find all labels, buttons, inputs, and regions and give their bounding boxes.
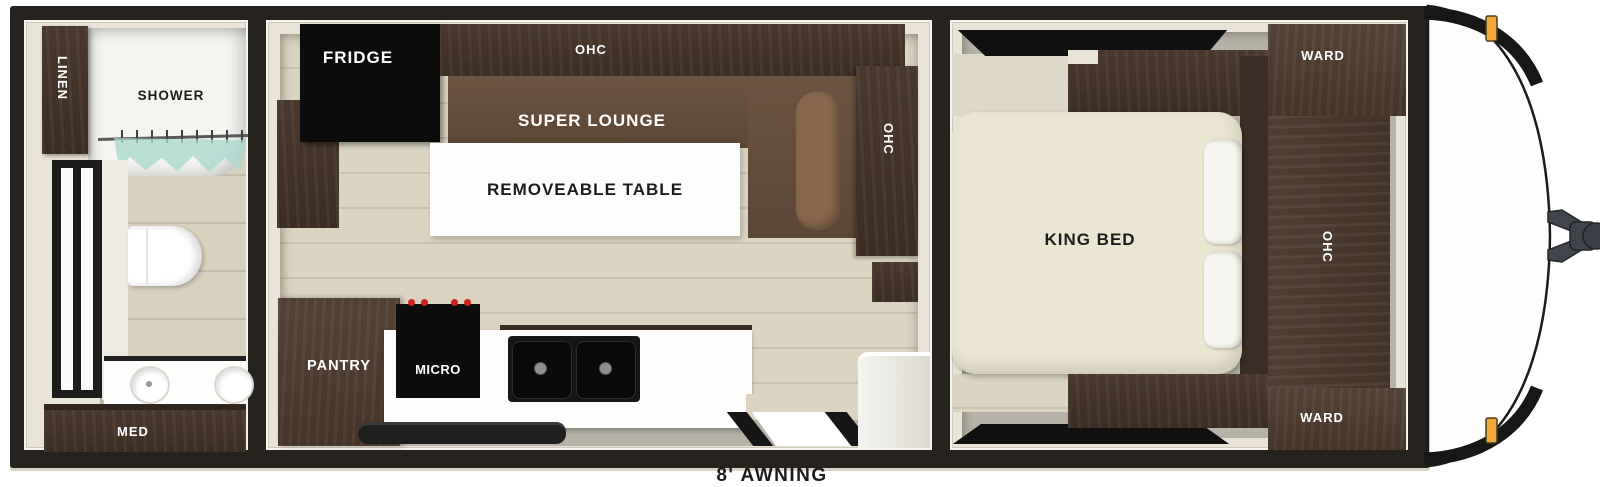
ohc-top-label: OHC: [551, 40, 631, 60]
ohc-over-bed: [1068, 50, 1268, 116]
marker-light-top: [1486, 16, 1497, 41]
double-sink: [508, 336, 640, 402]
bedroom-floor-wood: [952, 374, 1068, 412]
front-cap: [1398, 0, 1600, 487]
bathroom-window: [52, 160, 102, 398]
ward-rear-label: WARD: [1268, 408, 1376, 428]
linen-label: LINEN: [52, 46, 72, 110]
med-label: MED: [93, 422, 173, 442]
cabinet-side-panel: [1240, 56, 1270, 416]
ohc-side-label: OHC: [878, 117, 898, 161]
king-bed-label: KING BED: [954, 230, 1226, 250]
travel-trailer-floorplan: LINEN SHOWER MED FRIDGE OHC SUPER LOUNGE…: [0, 0, 1600, 487]
ohc-side-cabinet: [856, 66, 918, 256]
vestibule-wall: [858, 352, 930, 448]
lounge-bolster: [796, 92, 840, 230]
entry-step: [358, 422, 566, 444]
micro-label: MICRO: [396, 360, 480, 380]
burner-knob: [421, 299, 428, 306]
wardrobe-front: [1268, 24, 1406, 116]
pantry-label: PANTRY: [278, 356, 400, 376]
ward-front-label: WARD: [1268, 46, 1378, 66]
cabinet-under-bed: [1068, 374, 1268, 428]
ohc-top-cabinet: [440, 24, 905, 76]
pillow: [1204, 140, 1242, 244]
marker-light-bottom: [1486, 418, 1497, 443]
fridge-label: FRIDGE: [298, 48, 418, 68]
burner-knob: [464, 299, 471, 306]
pillow: [1204, 252, 1242, 348]
hitch-coupler: [1548, 210, 1600, 262]
super-lounge-label: SUPER LOUNGE: [472, 111, 712, 131]
burner-knob: [408, 299, 415, 306]
toilet: [128, 226, 202, 286]
removeable-table-label: REMOVEABLE TABLE: [430, 180, 740, 200]
fridge: [300, 24, 440, 142]
burner-knob: [451, 299, 458, 306]
shower-label: SHOWER: [96, 86, 246, 106]
microwave-cooktop: [396, 304, 480, 398]
bathroom-sink-2: [214, 366, 254, 404]
cabinet-end-block: [872, 262, 918, 302]
awning-label: 8' AWNING: [642, 466, 902, 486]
headboard-wall: [952, 54, 1068, 116]
ohc-bedside-label: OHC: [1317, 223, 1337, 271]
